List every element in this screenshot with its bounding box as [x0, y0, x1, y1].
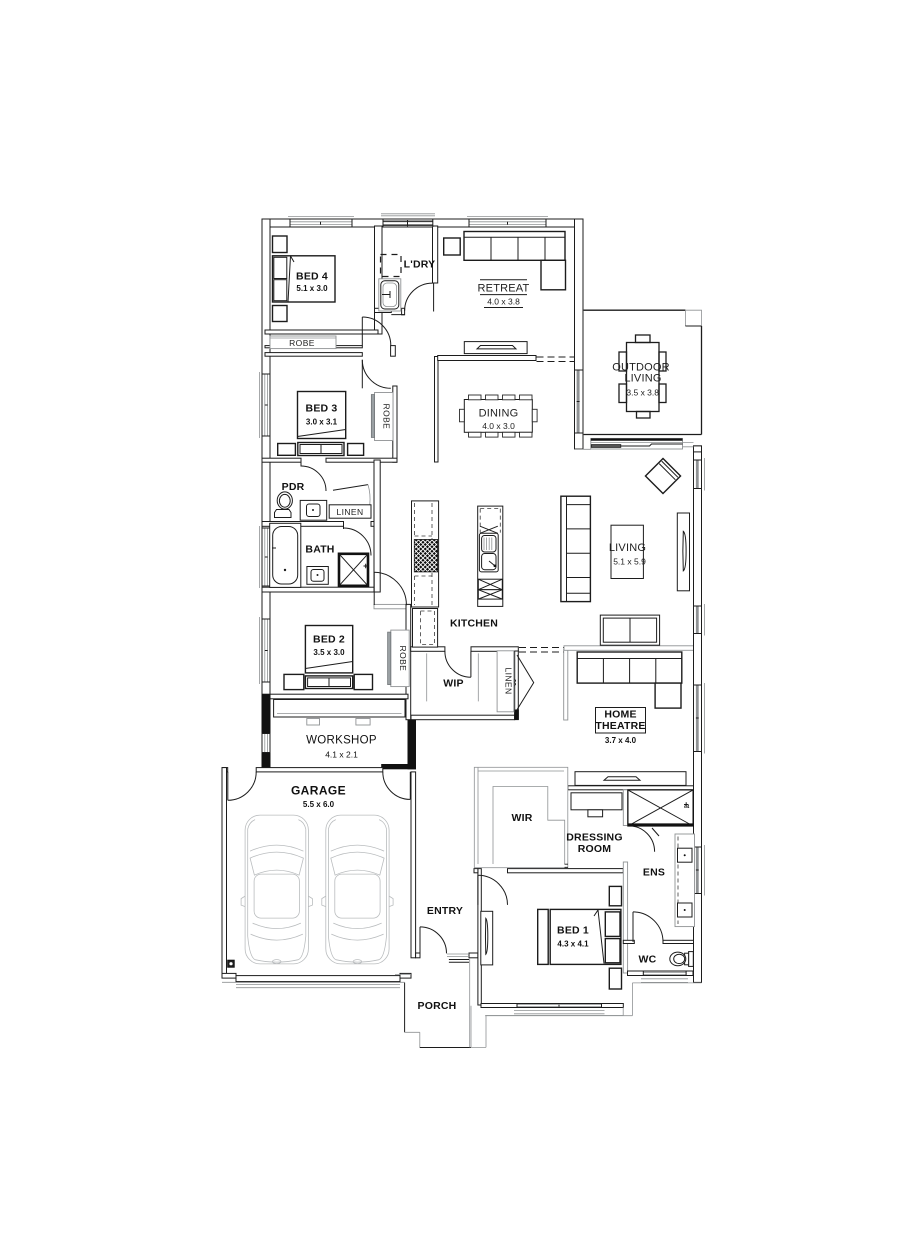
- svg-text:BED 2: BED 2: [313, 634, 345, 646]
- svg-text:5.5 x 6.0: 5.5 x 6.0: [303, 800, 335, 809]
- svg-text:WC: WC: [639, 954, 657, 966]
- svg-text:DINING: DINING: [479, 407, 519, 419]
- svg-text:3.5 x 3.0: 3.5 x 3.0: [313, 648, 345, 657]
- svg-text:d4: d4: [684, 804, 690, 809]
- svg-text:HOME: HOME: [604, 709, 636, 721]
- svg-text:ROOM: ROOM: [578, 843, 612, 855]
- svg-text:3.5 x 3.8: 3.5 x 3.8: [626, 388, 659, 398]
- svg-text:BED 4: BED 4: [296, 271, 328, 283]
- svg-text:5.1 x 5.9: 5.1 x 5.9: [613, 557, 646, 567]
- svg-text:5.1 x 3.0: 5.1 x 3.0: [296, 284, 328, 293]
- svg-text:WORKSHOP: WORKSHOP: [306, 735, 377, 747]
- svg-text:ROBE: ROBE: [289, 338, 315, 348]
- svg-text:BATH: BATH: [305, 544, 334, 556]
- svg-text:WIR: WIR: [511, 812, 532, 824]
- svg-text:LIVING: LIVING: [624, 373, 661, 385]
- svg-text:BED 1: BED 1: [557, 925, 589, 937]
- svg-text:3.0 x 3.1: 3.0 x 3.1: [306, 418, 338, 427]
- svg-text:4.0 x 3.0: 4.0 x 3.0: [482, 421, 515, 431]
- svg-text:ROBE: ROBE: [398, 646, 408, 672]
- svg-text:WIP: WIP: [443, 677, 463, 689]
- svg-text:ROBE: ROBE: [382, 404, 392, 430]
- svg-text:LINEN: LINEN: [336, 507, 363, 517]
- svg-text:RETREAT: RETREAT: [478, 283, 530, 295]
- svg-text:4.3 x 4.1: 4.3 x 4.1: [557, 940, 589, 949]
- svg-text:PORCH: PORCH: [418, 1000, 457, 1012]
- svg-text:3.7 x 4.0: 3.7 x 4.0: [605, 736, 637, 745]
- svg-text:GARAGE: GARAGE: [291, 784, 346, 798]
- svg-text:THEATRE: THEATRE: [595, 720, 645, 732]
- svg-text:LINEN: LINEN: [504, 667, 514, 694]
- svg-text:ENTRY: ENTRY: [427, 905, 463, 917]
- svg-text:LIVING: LIVING: [609, 542, 646, 554]
- svg-text:4.1 x 2.1: 4.1 x 2.1: [325, 750, 358, 760]
- svg-text:PDR: PDR: [282, 481, 305, 493]
- svg-text:KITCHEN: KITCHEN: [450, 618, 498, 630]
- svg-text:ENS: ENS: [643, 867, 665, 879]
- svg-text:4.0 x 3.8: 4.0 x 3.8: [487, 297, 520, 307]
- svg-text:BED 3: BED 3: [306, 403, 338, 415]
- svg-text:DRESSING: DRESSING: [566, 832, 622, 844]
- svg-text:L'DRY: L'DRY: [404, 259, 436, 271]
